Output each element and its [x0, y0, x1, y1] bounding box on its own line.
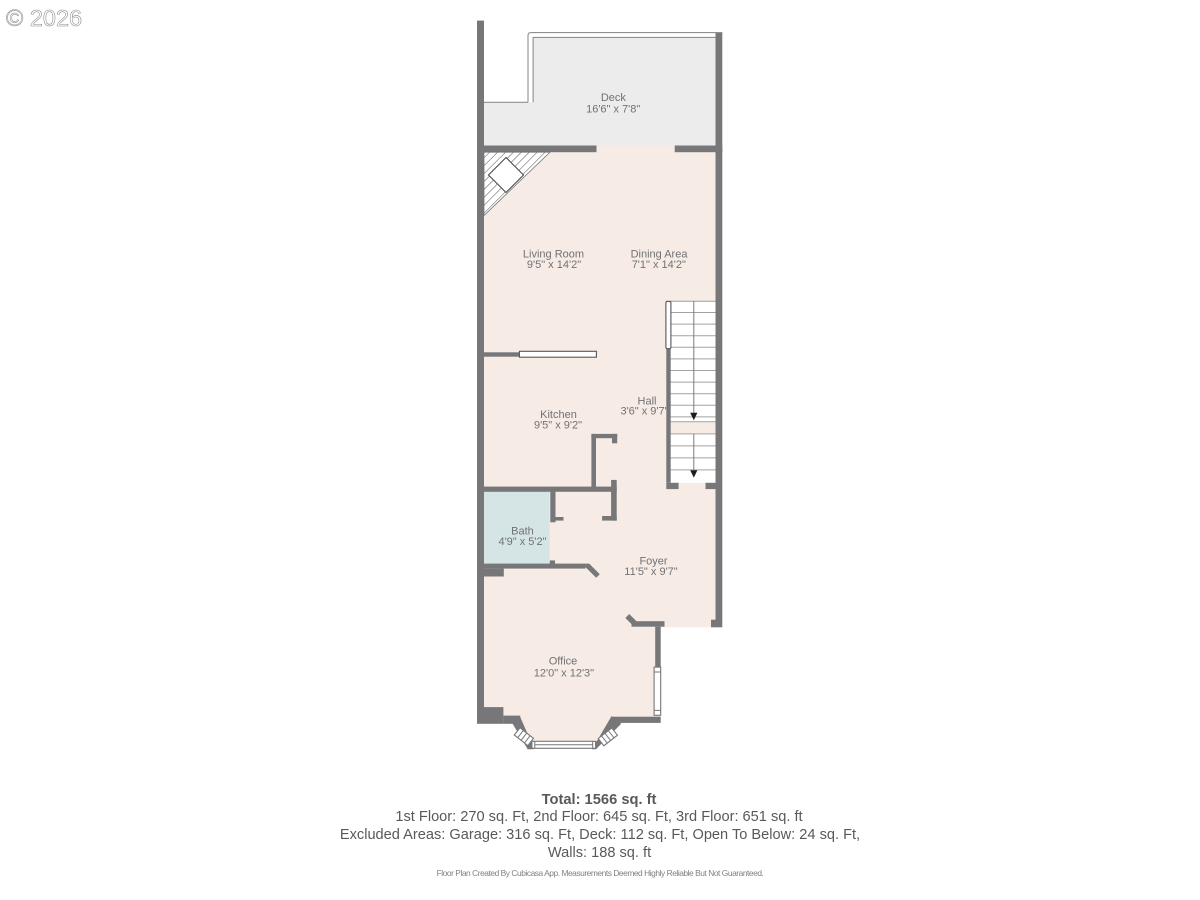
svg-text:Deck: Deck	[601, 92, 627, 104]
svg-text:Walls: 188 sq. ft: Walls: 188 sq. ft	[548, 845, 651, 861]
svg-text:4'9" x 5'2": 4'9" x 5'2"	[498, 536, 546, 548]
svg-text:16'6" x 7'8": 16'6" x 7'8"	[586, 104, 640, 116]
svg-text:Excluded Areas: Garage: 316 sq: Excluded Areas: Garage: 316 sq. Ft, Deck…	[340, 827, 860, 843]
svg-text:Floor Plan Created By Cubicasa: Floor Plan Created By Cubicasa App. Meas…	[437, 868, 764, 878]
svg-text:11'5" x 9'7": 11'5" x 9'7"	[624, 566, 677, 578]
svg-text:7'1" x 14'2": 7'1" x 14'2"	[632, 259, 686, 271]
svg-text:Total: 1566 sq. ft: Total: 1566 sq. ft	[542, 792, 657, 808]
svg-text:1st Floor: 270 sq. Ft, 2nd Flo: 1st Floor: 270 sq. Ft, 2nd Floor: 645 sq…	[395, 809, 802, 825]
svg-text:9'5" x 9'2": 9'5" x 9'2"	[534, 419, 582, 431]
svg-text:9'5" x 14'2": 9'5" x 14'2"	[527, 259, 581, 271]
svg-text:12'0" x 12'3": 12'0" x 12'3"	[534, 667, 594, 679]
svg-text:Office: Office	[549, 656, 578, 668]
svg-text:© 2026: © 2026	[6, 5, 82, 31]
svg-text:3'6" x 9'7": 3'6" x 9'7"	[620, 406, 668, 418]
